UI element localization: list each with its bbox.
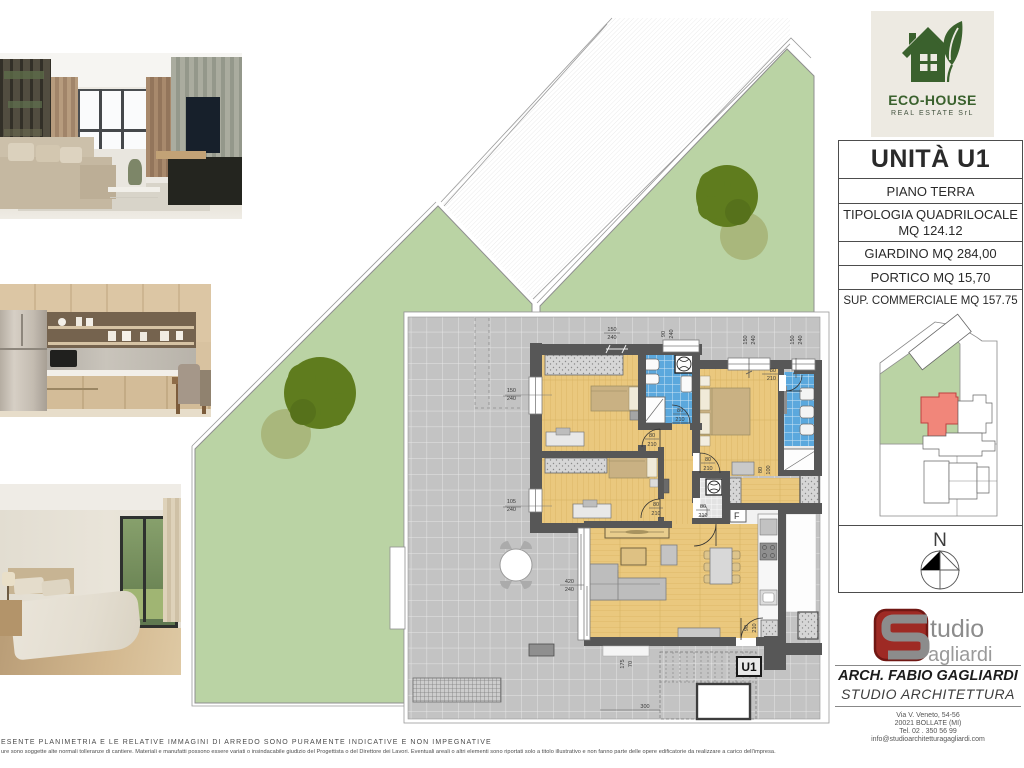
svg-text:80: 80 [770, 368, 776, 374]
svg-text:F: F [734, 511, 740, 521]
svg-text:U1: U1 [741, 660, 757, 674]
svg-text:210: 210 [752, 623, 758, 632]
svg-text:150: 150 [743, 335, 749, 344]
svg-text:80: 80 [653, 502, 659, 508]
svg-text:90: 90 [744, 625, 750, 631]
svg-text:240: 240 [798, 335, 804, 344]
svg-text:agliardi: agliardi [928, 644, 992, 666]
svg-text:210: 210 [698, 513, 707, 519]
svg-text:240: 240 [507, 396, 516, 402]
svg-text:210: 210 [703, 466, 712, 472]
svg-text:N: N [933, 530, 947, 551]
svg-text:90: 90 [661, 331, 667, 337]
svg-text:105: 105 [507, 499, 516, 505]
svg-text:150: 150 [790, 335, 796, 344]
svg-text:80: 80 [758, 467, 764, 473]
svg-text:240: 240 [751, 335, 757, 344]
svg-text:tudio: tudio [930, 615, 984, 643]
svg-text:175: 175 [620, 659, 626, 668]
svg-text:300: 300 [640, 704, 649, 710]
svg-text:80: 80 [705, 457, 711, 463]
svg-text:210: 210 [767, 376, 776, 382]
svg-text:210: 210 [675, 417, 684, 423]
svg-text:150: 150 [507, 388, 516, 394]
svg-text:150: 150 [607, 327, 616, 333]
svg-text:210: 210 [651, 511, 660, 517]
svg-text:80: 80 [649, 433, 655, 439]
svg-text:240: 240 [507, 507, 516, 513]
svg-text:240: 240 [669, 329, 675, 338]
svg-text:80: 80 [700, 504, 706, 510]
svg-text:240: 240 [565, 587, 574, 593]
svg-text:80: 80 [677, 408, 683, 414]
svg-text:420: 420 [565, 579, 574, 585]
svg-text:100: 100 [766, 465, 772, 474]
svg-text:70: 70 [628, 661, 634, 667]
svg-text:210: 210 [647, 442, 656, 448]
svg-text:240: 240 [607, 335, 616, 341]
